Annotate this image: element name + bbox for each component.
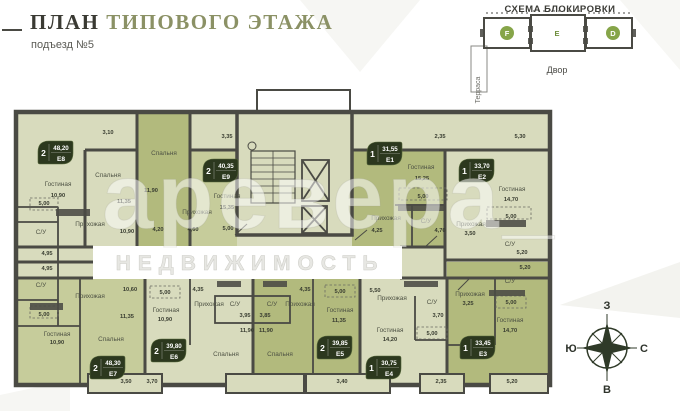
block-scheme: СХЕМА БЛОКИРОВКИ Терраса F Е D Двор xyxy=(471,4,636,103)
page-title: ПЛАН ТИПОВОГО ЭТАЖА xyxy=(30,10,333,35)
dim-label: 11,35 xyxy=(332,318,346,324)
room-label: Гостиная xyxy=(153,307,180,314)
dim-label: 10,90 xyxy=(50,340,64,346)
app: ПЛАН ТИПОВОГО ЭТАЖА подъезд №5 xyxy=(0,0,680,411)
svg-text:2: 2 xyxy=(320,343,325,353)
unit-badge-E8: 248,20E8 xyxy=(38,141,73,164)
dim-label: 3,35 xyxy=(221,134,232,140)
unit-badge-E5: 239,85E5 xyxy=(317,336,352,359)
block-f-label: F xyxy=(505,29,510,38)
room-label: С/У xyxy=(36,282,47,289)
dim-label: 11,90 xyxy=(259,328,273,334)
dim-label: 3,40 xyxy=(336,379,347,385)
dim-label: 4,35 xyxy=(192,287,203,293)
svg-text:30,75: 30,75 xyxy=(381,360,397,367)
dim-label: 14,20 xyxy=(383,337,397,343)
svg-text:2: 2 xyxy=(154,346,159,356)
room-label: С/У xyxy=(505,278,516,285)
room-label: Спальня xyxy=(213,351,239,358)
title-dash xyxy=(2,29,22,31)
floor-plan-canvas: НЕДВИЖИМОСТЬ Гостиная10,905,00С/У4,95При… xyxy=(0,0,680,411)
room-label: Гостиная xyxy=(44,331,71,338)
compass-rose: З Ю С В xyxy=(565,300,648,396)
svg-text:48,30: 48,30 xyxy=(105,360,121,367)
header: ПЛАН ТИПОВОГО ЭТАЖА подъезд №5 xyxy=(0,10,333,51)
title-secondary: ТИПОВОГО ЭТАЖА xyxy=(106,10,333,34)
svg-text:E6: E6 xyxy=(170,354,178,361)
compass-south: Ю xyxy=(565,343,576,355)
dim-label: 5,00 xyxy=(334,289,345,295)
room-label: С/У xyxy=(267,301,278,308)
unit-badge-E6: 239,80E6 xyxy=(151,339,186,362)
room-label: Прихожая xyxy=(285,301,315,308)
room-label: Прихожая xyxy=(194,301,224,308)
compass-west: З xyxy=(604,300,611,312)
svg-text:2: 2 xyxy=(41,148,46,158)
terrace-label: Терраса xyxy=(475,76,482,103)
svg-text:E7: E7 xyxy=(109,371,117,378)
dim-label: 2,35 xyxy=(434,134,445,140)
svg-text:39,85: 39,85 xyxy=(332,340,348,347)
dim-label: 5,20 xyxy=(519,265,530,271)
dim-label: 5,00 xyxy=(38,201,49,207)
svg-text:E8: E8 xyxy=(57,156,65,163)
dim-label: 5,30 xyxy=(514,134,525,140)
compass-east: В xyxy=(603,384,611,396)
room-label: Прихожая xyxy=(377,295,407,302)
dim-label: 5,00 xyxy=(505,300,516,306)
unit-badge-E4: 130,75E4 xyxy=(366,356,401,379)
page-subtitle: подъезд №5 xyxy=(31,39,333,51)
dim-label: 3,70 xyxy=(146,379,157,385)
room-label: С/У xyxy=(427,299,438,306)
room-label: Спальня xyxy=(267,351,293,358)
room-label: Гостиная xyxy=(45,181,72,188)
unit-badge-E7: 248,30E7 xyxy=(90,356,125,379)
svg-text:39,80: 39,80 xyxy=(166,343,182,350)
title-primary: ПЛАН xyxy=(30,10,99,34)
room-label: Прихожая xyxy=(455,291,485,298)
dim-label: 10,60 xyxy=(123,287,137,293)
room-label: Прихожая xyxy=(75,293,105,300)
dim-label: 4,95 xyxy=(41,251,52,257)
dim-label: 5,50 xyxy=(369,288,380,294)
room-label: Прихожая xyxy=(75,221,105,228)
yard-label: Двор xyxy=(547,65,568,75)
svg-text:33,45: 33,45 xyxy=(475,340,491,347)
dim-label: 3,95 xyxy=(239,313,250,319)
dim-label: 11,90 xyxy=(240,328,254,334)
dim-label: 5,00 xyxy=(38,312,49,318)
block-d-label: D xyxy=(610,29,616,38)
block-e-label: Е xyxy=(554,29,559,38)
compass-north: С xyxy=(640,343,648,355)
room-label: Гостиная xyxy=(327,307,354,314)
svg-text:1: 1 xyxy=(463,343,468,353)
room-label: Гостиная xyxy=(377,327,404,334)
watermark-brand: аревера_ xyxy=(102,146,558,248)
svg-text:E4: E4 xyxy=(385,371,393,378)
dim-label: 10,90 xyxy=(51,193,65,199)
dim-label: 5,00 xyxy=(159,290,170,296)
room-label: Спальня xyxy=(98,336,124,343)
room-label: С/У xyxy=(230,301,241,308)
dim-label: 5,20 xyxy=(516,250,527,256)
dim-label: 3,25 xyxy=(462,301,473,307)
svg-text:1: 1 xyxy=(369,363,374,373)
dim-label: 5,00 xyxy=(426,331,437,337)
dim-label: 11,35 xyxy=(120,314,134,320)
dim-label: 5,20 xyxy=(506,379,517,385)
dim-label: 3,50 xyxy=(120,379,131,385)
dim-label: 10,90 xyxy=(158,317,172,323)
unit-badge-E3: 133,45E3 xyxy=(460,336,495,359)
dim-label: 4,95 xyxy=(41,266,52,272)
dim-label: 14,70 xyxy=(503,328,517,334)
watermark-band-text: НЕДВИЖИМОСТЬ xyxy=(116,252,385,275)
dim-label: 3,10 xyxy=(102,130,113,136)
room-label: Гостиная xyxy=(497,317,524,324)
dim-label: 3,85 xyxy=(259,313,270,319)
svg-text:E5: E5 xyxy=(336,351,344,358)
svg-text:E3: E3 xyxy=(479,351,487,358)
dim-label: 2,35 xyxy=(435,379,446,385)
svg-text:48,20: 48,20 xyxy=(53,145,69,152)
dim-label: 4,35 xyxy=(299,287,310,293)
room-label: С/У xyxy=(36,229,47,236)
dim-label: 3,70 xyxy=(432,313,443,319)
svg-text:2: 2 xyxy=(93,363,98,373)
